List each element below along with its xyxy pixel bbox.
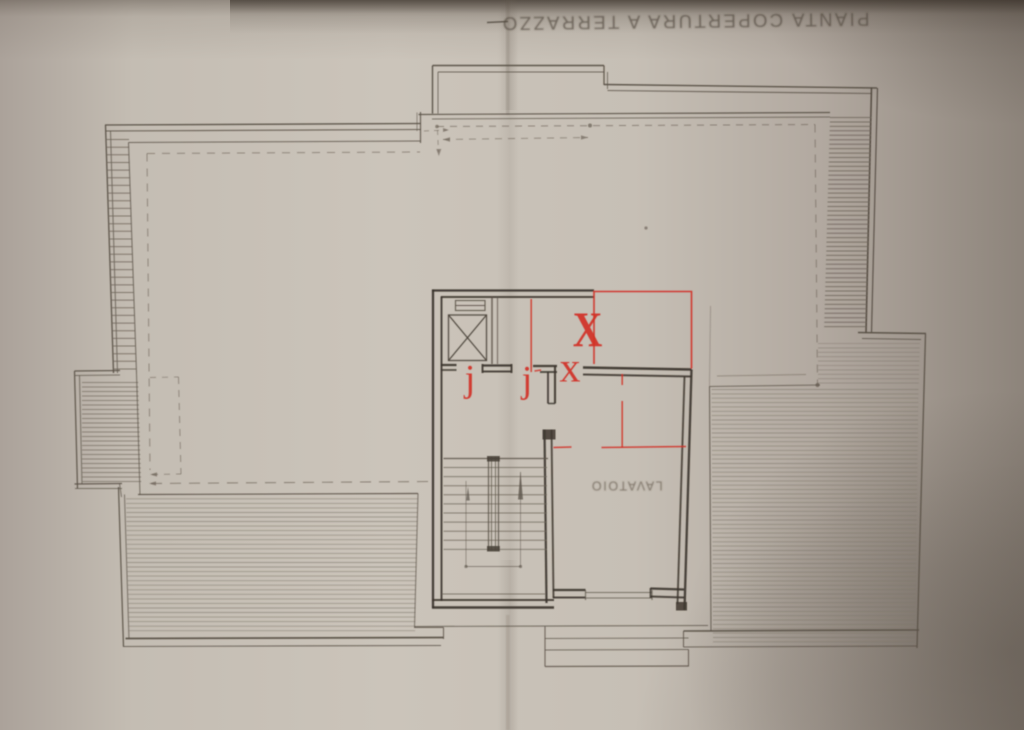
svg-text:j: j bbox=[520, 359, 533, 401]
svg-text:x: x bbox=[560, 346, 581, 392]
svg-text:j: j bbox=[463, 358, 476, 400]
svg-text:LAVATOIO: LAVATOIO bbox=[590, 479, 662, 493]
